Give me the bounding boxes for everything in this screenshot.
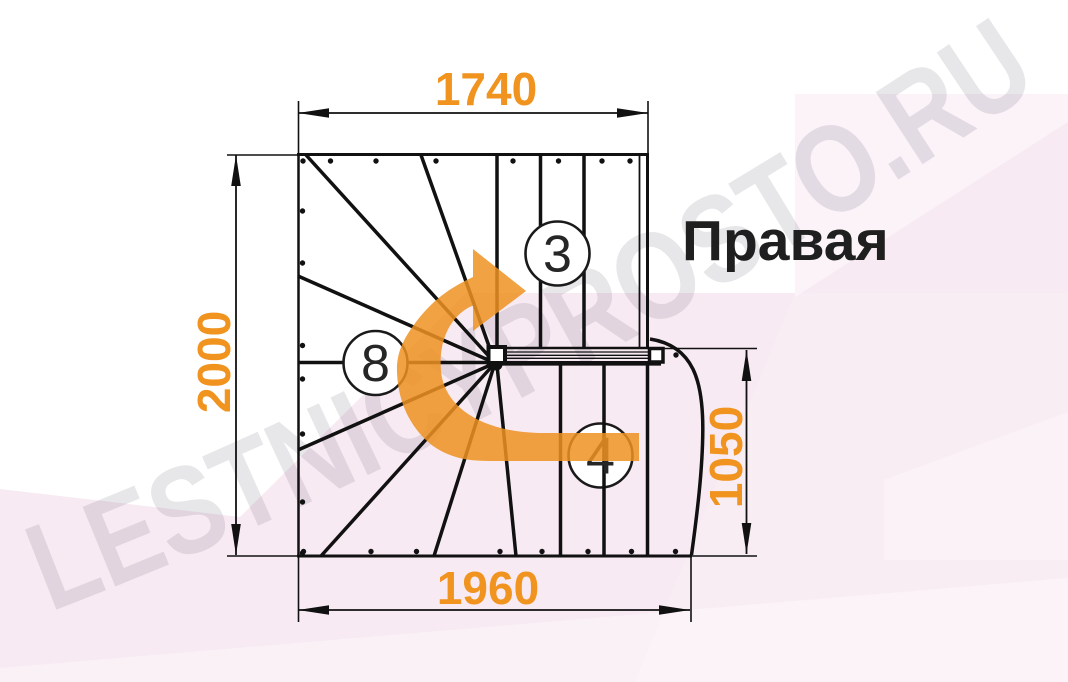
svg-text:1960: 1960 [437, 562, 539, 614]
svg-text:1050: 1050 [700, 406, 752, 508]
svg-text:8: 8 [361, 335, 390, 393]
svg-text:3: 3 [543, 226, 572, 284]
svg-text:Правая: Правая [682, 209, 889, 273]
svg-text:2000: 2000 [188, 311, 240, 413]
svg-text:1740: 1740 [435, 63, 537, 115]
